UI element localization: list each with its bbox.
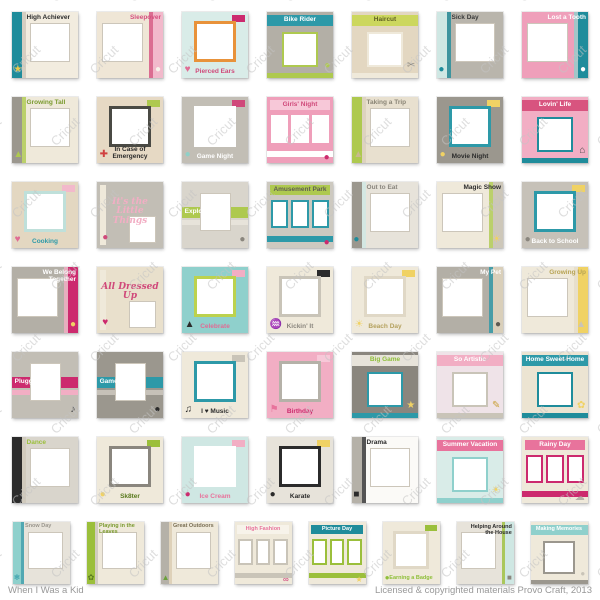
layout-card[interactable]: Amusement Park● [267, 182, 333, 248]
card-accent2 [22, 437, 26, 503]
photo-placeholder [102, 23, 142, 63]
card-title: So Artistic [437, 357, 503, 364]
layout-card[interactable]: Earning a Badge● [383, 522, 440, 584]
photo-placeholder [537, 372, 574, 408]
photo-placeholder [534, 191, 576, 232]
card-title: Game Night [182, 154, 248, 161]
photo-placeholder [194, 106, 236, 147]
watermark-text: Cricut [126, 0, 161, 5]
photo-placeholder [452, 457, 489, 493]
layout-card[interactable]: Ice Cream● [182, 437, 248, 503]
layout-card[interactable]: Helping Around the House■ [457, 522, 514, 584]
card-title: Drama [367, 440, 387, 447]
card-motif-icon: ▲ [13, 150, 23, 160]
watermark-text: Cricut [282, 0, 317, 5]
layout-card[interactable]: Sick Day● [437, 12, 503, 78]
layout-card[interactable]: Celebrate▲ [182, 267, 248, 333]
photo-placeholder [30, 23, 70, 63]
card-motif-icon: ∞ [283, 576, 289, 584]
layout-card[interactable]: Picture Day★ [309, 522, 366, 584]
card-motif-icon: ♒ [270, 320, 282, 330]
photo-placeholder [367, 32, 404, 68]
layout-card[interactable]: Kickin' It♒ [267, 267, 333, 333]
license-text: Licensed & copyrighted materials Provo C… [375, 585, 592, 596]
photo-placeholder [526, 455, 543, 483]
card-title: Rainy Day [522, 442, 588, 449]
card-accent2 [362, 182, 366, 248]
card-title: Summer Vacation [437, 442, 503, 449]
card-motif-icon: ⌂ [579, 146, 585, 156]
photo-placeholder [109, 106, 151, 147]
photo-placeholder [194, 21, 236, 62]
photo-placeholder [194, 276, 236, 317]
layout-card[interactable]: Dance◆ [12, 437, 78, 503]
photo-placeholder [537, 117, 574, 153]
card-motif-icon: ☀ [492, 235, 501, 245]
card-title: Karate [267, 494, 333, 501]
card-title: Playing in the Leaves [99, 524, 141, 536]
photo-placeholder [367, 372, 404, 408]
layout-card[interactable]: High Achiever★ [12, 12, 78, 78]
card-title: Movie Night [437, 154, 503, 161]
layout-card[interactable]: We Belong Together● [12, 267, 78, 333]
layout-card[interactable]: Big Game★ [352, 352, 418, 418]
card-title: All Dressed Up [100, 283, 161, 302]
card-title: Great Outdoors [173, 524, 214, 530]
photo-placeholder [312, 115, 329, 143]
layout-card[interactable]: It's the Little Things● [97, 182, 163, 248]
card-motif-icon: ▲ [162, 574, 170, 582]
card-motif-icon: ● [70, 320, 76, 330]
layout-row: High Achiever★Sleepover●Pierced Ears♥Bik… [0, 12, 600, 78]
layout-card[interactable]: Pierced Ears♥ [182, 12, 248, 78]
photo-placeholder [30, 108, 70, 148]
photo-placeholder [370, 108, 410, 148]
card-motif-icon: ★ [406, 401, 415, 411]
layout-card[interactable]: Playing in the Leaves✿ [87, 522, 144, 584]
photo-placeholder [279, 276, 321, 317]
photo-placeholder [102, 532, 137, 569]
card-title: Sick Day [452, 15, 479, 22]
card-motif-icon: ● [185, 150, 191, 160]
photo-placeholder [271, 200, 288, 228]
layout-card[interactable]: Exploring● [182, 182, 248, 248]
layout-card[interactable]: Growing Tall▲ [12, 97, 78, 163]
photo-placeholder [271, 115, 288, 143]
card-motif-icon: ● [385, 574, 390, 582]
card-title: Earning a Badge [383, 576, 440, 582]
layout-card[interactable]: Sleepover● [97, 12, 163, 78]
layout-card[interactable]: Birthday⚑ [267, 352, 333, 418]
card-title: Big Game [352, 357, 418, 364]
layout-card[interactable]: High Fashion∞ [235, 522, 292, 584]
card-motif-icon: ● [324, 238, 330, 248]
layout-row: We Belong Together●All Dressed Up♥Celebr… [0, 267, 600, 333]
watermark-text: Cricut [204, 0, 239, 5]
photo-placeholder [312, 200, 329, 228]
card-motif-icon: ♥ [15, 235, 21, 245]
card-title: Ice Cream [182, 494, 248, 501]
photo-placeholder [30, 448, 70, 488]
card-motif-icon: ✚ [100, 150, 108, 160]
caption-title: When I Was a Kid [8, 585, 84, 596]
card-title: Plugged In [15, 379, 48, 386]
card-accent2 [437, 413, 503, 418]
card-title: Making Memories [531, 527, 588, 533]
card-accent2 [22, 12, 26, 78]
card-title: Bike Rider [267, 17, 333, 24]
card-motif-icon: ☀ [491, 486, 500, 496]
layout-card[interactable]: Lost a Tooth● [522, 12, 588, 78]
photo-placeholder [567, 455, 584, 483]
card-motif-icon: ✂ [407, 61, 415, 71]
card-motif-icon: ▲ [576, 320, 586, 330]
card-motif-icon: ⚑ [270, 405, 279, 415]
card-title: Game On [100, 379, 129, 386]
photo-placeholder [442, 278, 482, 318]
layout-card[interactable]: Great Outdoors▲ [161, 522, 218, 584]
card-title: Girls' Night [267, 102, 333, 109]
card-motif-icon: ● [324, 61, 330, 71]
card-motif-icon: ❄ [14, 574, 21, 582]
layout-card[interactable]: Girls' Night● [267, 97, 333, 163]
photo-placeholder [330, 539, 345, 565]
card-title: Lost a Tooth [548, 15, 587, 22]
card-accent2 [267, 73, 333, 78]
card-motif-icon: ♫ [185, 405, 193, 415]
card-title: Growing Up [549, 270, 586, 277]
photo-placeholder [291, 200, 308, 228]
photo-placeholder [194, 361, 236, 402]
card-title: Growing Tall [27, 100, 66, 107]
card-title: Taking a Trip [367, 100, 407, 107]
photo-placeholder [109, 446, 151, 487]
photo-placeholder [176, 532, 211, 569]
watermark-text: Cricut [594, 0, 600, 5]
photo-placeholder [393, 531, 429, 569]
layout-card[interactable]: Karate● [267, 437, 333, 503]
layout-thumbnail-grid: High Achiever★Sleepover●Pierced Ears♥Bik… [0, 12, 600, 600]
layout-card[interactable]: Bike Rider● [267, 12, 333, 78]
photo-placeholder [282, 32, 319, 68]
layout-card[interactable]: All Dressed Up♥ [97, 267, 163, 333]
card-motif-icon: ▲ [353, 150, 363, 160]
card-motif-icon: ● [440, 150, 446, 160]
card-title: Dance [27, 440, 47, 447]
card-motif-icon: ■ [353, 490, 359, 500]
card-title: Sk8ter [97, 494, 163, 501]
photo-placeholder [455, 23, 495, 63]
photo-placeholder [312, 539, 327, 565]
layout-card[interactable]: Plugged In♪ [12, 352, 78, 418]
card-title: Pierced Ears [182, 69, 248, 76]
card-title: Sleepover [130, 15, 161, 22]
card-title: We Belong Together [29, 270, 77, 284]
card-motif-icon: ● [324, 153, 330, 163]
card-motif-icon: ● [580, 570, 585, 578]
card-accent2 [531, 580, 588, 584]
card-title: Amusement Park [267, 187, 333, 194]
photo-placeholder [527, 23, 567, 63]
card-motif-icon: ● [353, 235, 359, 245]
card-title: Out to Eat [367, 185, 398, 192]
layout-card[interactable]: Sk8ter● [97, 437, 163, 503]
layout-card[interactable]: Beach Day☀ [352, 267, 418, 333]
card-motif-icon: ● [525, 235, 531, 245]
photo-placeholder [273, 539, 288, 565]
card-title: Haircut [352, 17, 418, 24]
card-accent2 [95, 522, 98, 584]
product-catalog-sheet: High Achiever★Sleepover●Pierced Ears♥Bik… [0, 0, 600, 600]
card-motif-icon: ☀ [355, 320, 364, 330]
card-title: Home Sweet Home [522, 357, 588, 364]
photo-placeholder [370, 448, 410, 488]
card-title: Helping Around the House [471, 525, 512, 537]
card-accent2 [21, 522, 24, 584]
card-motif-icon: ● [155, 65, 161, 75]
card-title: Snow Day [25, 524, 51, 530]
card-motif-icon: ★ [13, 65, 22, 75]
card-title: Picture Day [309, 527, 366, 533]
card-motif-icon: ✿ [88, 574, 95, 582]
layout-card[interactable]: Out to Eat● [352, 182, 418, 248]
card-accent2 [437, 498, 503, 503]
photo-placeholder [527, 278, 567, 318]
layout-card[interactable]: Taking a Trip▲ [352, 97, 418, 163]
photo-placeholder [364, 276, 406, 317]
layout-row: Snow Day❄Playing in the Leaves✿Great Out… [0, 522, 600, 584]
layout-row: Plugged In♪Game On●I ♥ Music♫Birthday⚑Bi… [0, 352, 600, 418]
card-title: My Pet [480, 270, 501, 277]
card-motif-icon: ● [495, 320, 501, 330]
layout-row: Cooking♥It's the Little Things●Exploring… [0, 182, 600, 248]
card-accent2 [362, 437, 366, 503]
card-motif-icon: ■ [507, 574, 512, 582]
card-motif-icon: ● [239, 235, 245, 245]
card-motif-icon: ● [185, 490, 191, 500]
card-accent2 [522, 158, 588, 163]
photo-placeholder [256, 539, 271, 565]
layout-card[interactable]: Making Memories● [531, 522, 588, 584]
photo-placeholder [543, 541, 575, 574]
card-accent2 [522, 413, 588, 418]
layout-card[interactable]: Home Sweet Home✿ [522, 352, 588, 418]
photo-placeholder [129, 301, 157, 327]
card-accent2 [447, 12, 451, 78]
layout-card[interactable]: Snow Day❄ [13, 522, 70, 584]
photo-placeholder [28, 532, 63, 569]
layout-card[interactable]: Summer Vacation☀ [437, 437, 503, 503]
layout-card[interactable]: My Pet● [437, 267, 503, 333]
footer: When I Was a Kid Licensed & copyrighted … [8, 585, 592, 596]
layout-card[interactable]: Magic Show☀ [437, 182, 503, 248]
card-accent2 [352, 73, 418, 78]
photo-placeholder [24, 191, 66, 232]
watermark-text: Cricut [438, 0, 473, 5]
card-motif-icon: ♪ [70, 405, 75, 415]
layout-card[interactable]: Game Night● [182, 97, 248, 163]
card-title: Magic Show [463, 185, 501, 192]
card-motif-icon: ● [580, 65, 586, 75]
layout-card[interactable]: I ♥ Music♫ [182, 352, 248, 418]
watermark-text: Cricut [516, 0, 551, 5]
photo-placeholder [546, 455, 563, 483]
card-motif-icon: ● [438, 65, 444, 75]
photo-placeholder [279, 446, 321, 487]
watermark-text: Cricut [360, 0, 395, 5]
layout-card[interactable]: Rainy Day☁ [522, 437, 588, 503]
photo-placeholder [452, 372, 489, 408]
card-motif-icon: ✎ [492, 401, 500, 411]
card-accent2 [169, 522, 172, 584]
layout-card[interactable]: Lovin' Life⌂ [522, 97, 588, 163]
card-motif-icon: ★ [355, 576, 362, 584]
photo-placeholder [370, 193, 410, 233]
layout-card[interactable]: Drama■ [352, 437, 418, 503]
photo-placeholder [291, 115, 308, 143]
layout-card[interactable]: Movie Night● [437, 97, 503, 163]
card-motif-icon: ♥ [102, 318, 108, 328]
card-motif-icon: ● [270, 490, 276, 500]
layout-card[interactable]: So Artistic✎ [437, 352, 503, 418]
layout-card[interactable]: Haircut✂ [352, 12, 418, 78]
card-title: Cooking [12, 239, 78, 246]
watermark-text: Cricut [0, 0, 4, 5]
photo-placeholder [449, 106, 491, 147]
card-motif-icon: ▲ [185, 320, 195, 330]
card-title: It's the Little Things [100, 198, 161, 226]
card-motif-icon: ● [100, 490, 106, 500]
card-motif-icon: ● [102, 233, 108, 243]
photo-placeholder [347, 539, 362, 565]
photo-placeholder [194, 446, 236, 487]
layout-card[interactable]: Growing Up▲ [522, 267, 588, 333]
card-title: Back to School [522, 239, 588, 246]
card-title: High Fashion [235, 527, 292, 533]
photo-placeholder [461, 532, 496, 569]
layout-row: Growing Tall▲In Case of Emergency✚Game N… [0, 97, 600, 163]
card-motif-icon: ☁ [575, 493, 585, 503]
card-motif-icon: ● [154, 405, 160, 415]
card-title: Exploring [185, 209, 215, 216]
card-accent2 [352, 413, 418, 418]
photo-placeholder [442, 193, 482, 233]
layout-card[interactable]: Game On● [97, 352, 163, 418]
card-title: High Achiever [27, 15, 70, 22]
card-title: Lovin' Life [522, 102, 588, 109]
layout-card[interactable]: Back to School● [522, 182, 588, 248]
watermark-text: Cricut [48, 0, 83, 5]
photo-placeholder [279, 361, 321, 402]
layout-card[interactable]: In Case of Emergency✚ [97, 97, 163, 163]
card-motif-icon: ◆ [13, 490, 21, 500]
card-motif-icon: ♥ [185, 65, 191, 75]
card-motif-icon: ✿ [577, 401, 585, 411]
layout-row: Dance◆Sk8ter●Ice Cream●Karate●Drama■Summ… [0, 437, 600, 503]
photo-placeholder [238, 539, 253, 565]
layout-card[interactable]: Cooking♥ [12, 182, 78, 248]
